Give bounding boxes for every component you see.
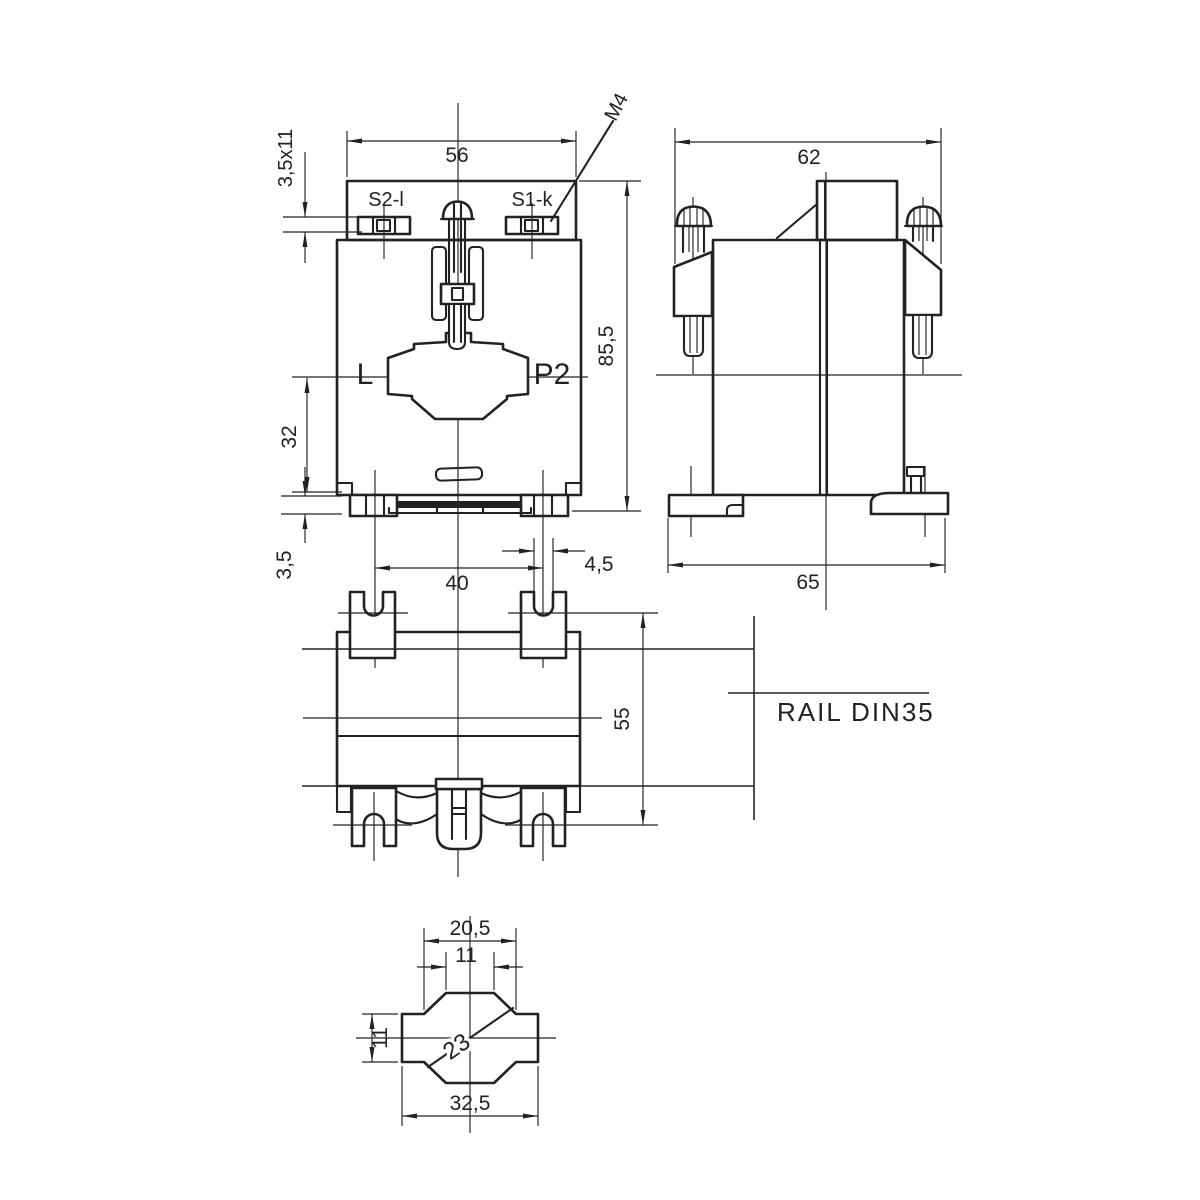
screw-head-side-right bbox=[907, 207, 941, 227]
dim-20-5-label: 20,5 bbox=[450, 917, 491, 940]
side-view: 62 65 bbox=[656, 128, 962, 610]
screw-tip bbox=[449, 304, 465, 349]
plan-tab-left bbox=[337, 786, 351, 812]
plan-tab-right bbox=[566, 786, 580, 812]
base-rail-bar bbox=[397, 501, 521, 508]
side-centerlines bbox=[656, 172, 962, 610]
dim-11-left-label: 11 bbox=[369, 1027, 392, 1049]
m4-leader: M4 bbox=[551, 90, 633, 221]
dim-55-label: 55 bbox=[611, 707, 634, 730]
dim-62: 62 bbox=[675, 128, 941, 264]
dim-56-label: 56 bbox=[445, 144, 468, 167]
dim-85-5: 85,5 bbox=[572, 181, 641, 511]
dim-40: 40 bbox=[375, 470, 543, 668]
dim-slot-label: 3,5x11 bbox=[275, 129, 297, 188]
drawing-page: S2-l S1-k L P2 M4 56 3,5x11 bbox=[0, 0, 1200, 1200]
dim-85-5-label: 85,5 bbox=[595, 326, 618, 367]
side-feet bbox=[669, 467, 948, 516]
dim-32-5-label: 32,5 bbox=[450, 1092, 491, 1115]
dim-32-label: 32 bbox=[278, 425, 301, 448]
body-corner-step-left bbox=[337, 483, 352, 495]
side-body bbox=[713, 240, 904, 495]
dim-65: 65 bbox=[668, 518, 945, 594]
side-top-block bbox=[817, 181, 897, 240]
secondary-terminal-left bbox=[358, 203, 410, 259]
primary-label-l: L bbox=[357, 358, 374, 391]
front-view: S2-l S1-k L P2 M4 56 3,5x11 bbox=[273, 90, 641, 877]
dim-40-label: 40 bbox=[445, 572, 468, 595]
side-top-chamfer bbox=[777, 204, 817, 238]
screw-head-side-left bbox=[677, 207, 711, 227]
technical-drawing-canvas: S2-l S1-k L P2 M4 56 3,5x11 bbox=[0, 0, 1200, 1200]
dim-32: 32 bbox=[278, 378, 342, 492]
din-clip bbox=[907, 467, 924, 476]
terminal-label-s1: S1-k bbox=[511, 189, 553, 211]
m4-label: M4 bbox=[600, 90, 632, 125]
din-clip-top-left bbox=[350, 592, 395, 658]
plan-bottom-assembly bbox=[352, 779, 565, 849]
screw-head bbox=[443, 202, 472, 220]
base-lower-strip bbox=[389, 508, 531, 513]
front-base bbox=[350, 495, 568, 516]
dim-56: 56 bbox=[347, 131, 576, 177]
screw-shaft-lower-left bbox=[684, 316, 703, 356]
dim-55: 55 bbox=[611, 613, 643, 825]
plan-view: RAIL DIN35 bbox=[302, 592, 935, 861]
dim-slot-3-5x11: 3,5x11 bbox=[275, 129, 362, 263]
dim-65-label: 65 bbox=[796, 571, 819, 594]
terminal-wedge-left bbox=[674, 252, 712, 316]
clamp-column bbox=[437, 789, 481, 849]
primary-label-p2: P2 bbox=[534, 358, 571, 391]
aperture-view: 23 20,5 11 11 32,5 bbox=[356, 916, 556, 1133]
body-corner-step-right bbox=[566, 483, 581, 495]
dim-4-5-label: 4,5 bbox=[584, 553, 613, 576]
side-foot-right bbox=[871, 493, 948, 514]
secondary-terminal-right bbox=[506, 203, 558, 259]
terminal-label-s2: S2-l bbox=[368, 189, 404, 211]
screw-shaft-lower-right bbox=[913, 315, 932, 358]
rail-din35-label: RAIL DIN35 bbox=[777, 697, 935, 727]
dim-62-label: 62 bbox=[797, 146, 820, 169]
dim-11-top-label: 11 bbox=[455, 944, 477, 967]
nameplate-slot bbox=[436, 467, 482, 481]
clamp-column-cap bbox=[436, 779, 482, 789]
dim-3-5-label: 3,5 bbox=[273, 550, 296, 579]
